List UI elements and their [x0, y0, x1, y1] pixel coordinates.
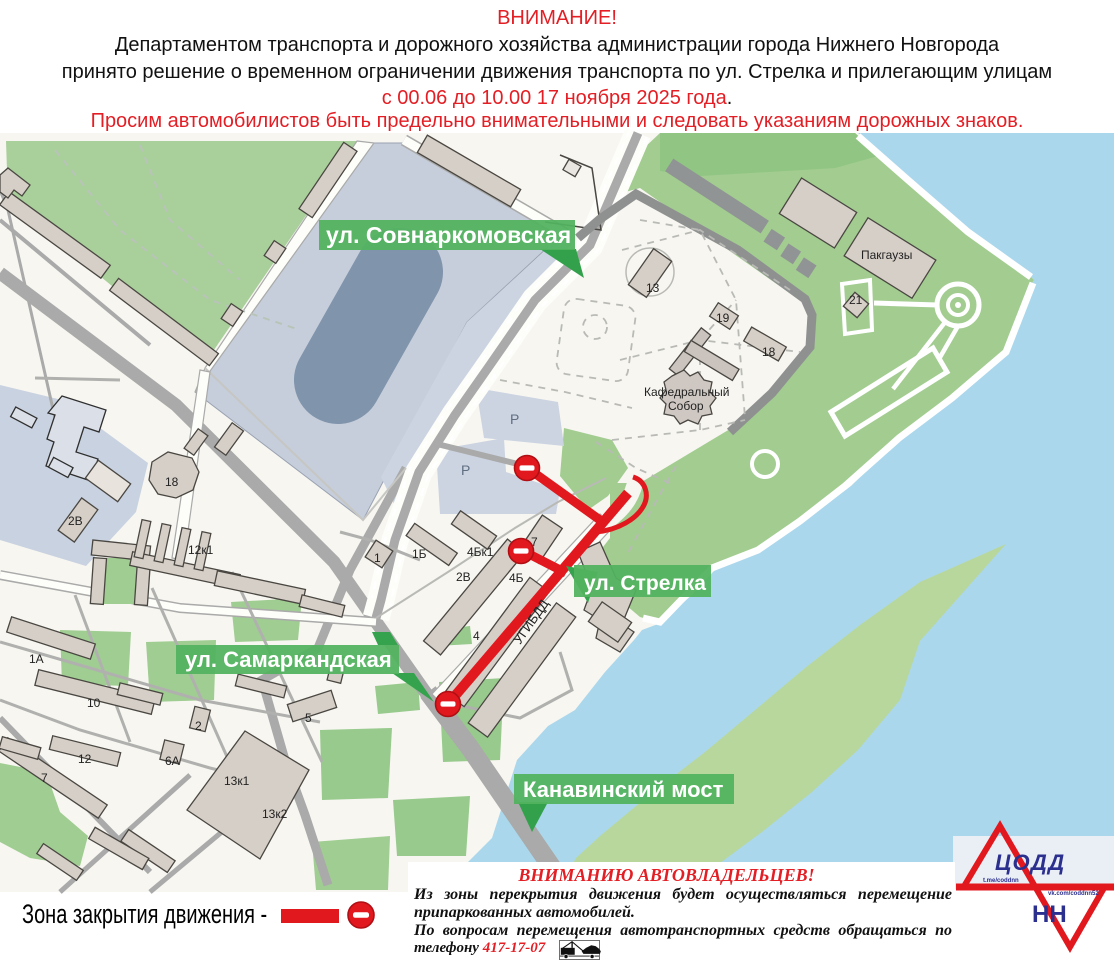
- svg-text:ул. Самаркандская: ул. Самаркандская: [185, 647, 392, 672]
- svg-text:ул. Стрелка: ул. Стрелка: [584, 572, 706, 595]
- svg-text:18: 18: [762, 345, 776, 359]
- svg-text:P: P: [510, 411, 519, 427]
- svg-text:6А: 6А: [165, 754, 180, 768]
- svg-text:Собор: Собор: [668, 399, 704, 413]
- svg-text:2: 2: [195, 719, 202, 733]
- svg-text:10: 10: [87, 696, 101, 710]
- svg-text:1: 1: [374, 551, 381, 565]
- svg-text:12к1: 12к1: [188, 543, 214, 557]
- svg-text:1А: 1А: [29, 652, 44, 666]
- svg-text:4Б: 4Б: [509, 571, 524, 585]
- svg-text:5: 5: [305, 711, 312, 725]
- svg-text:P: P: [461, 462, 470, 478]
- svg-text:2В: 2В: [456, 570, 471, 584]
- svg-text:4Бк1: 4Бк1: [467, 545, 494, 559]
- svg-text:t.me/coddnn: t.me/coddnn: [983, 878, 1019, 884]
- svg-text:13: 13: [646, 281, 660, 295]
- svg-text:vk.com/coddnn52: vk.com/coddnn52: [1048, 891, 1099, 897]
- svg-text:ул. Совнаркомовская: ул. Совнаркомовская: [326, 222, 571, 248]
- svg-text:2В: 2В: [68, 514, 83, 528]
- svg-text:19: 19: [716, 311, 730, 325]
- svg-text:18: 18: [165, 475, 179, 489]
- svg-text:ЦОДД: ЦОДД: [995, 850, 1066, 875]
- svg-text:12: 12: [78, 752, 92, 766]
- svg-text:Канавинский мост: Канавинский мост: [523, 777, 724, 802]
- svg-text:13к2: 13к2: [262, 807, 288, 821]
- svg-text:НН: НН: [1032, 901, 1067, 928]
- svg-text:7: 7: [531, 535, 538, 549]
- svg-text:4: 4: [473, 629, 480, 643]
- svg-text:Кафедральный: Кафедральный: [644, 385, 730, 399]
- svg-text:21: 21: [849, 293, 863, 307]
- svg-text:Пакгаузы: Пакгаузы: [861, 248, 912, 262]
- svg-text:7: 7: [41, 771, 48, 785]
- svg-text:1Б: 1Б: [412, 547, 427, 561]
- svg-text:13к1: 13к1: [224, 774, 250, 788]
